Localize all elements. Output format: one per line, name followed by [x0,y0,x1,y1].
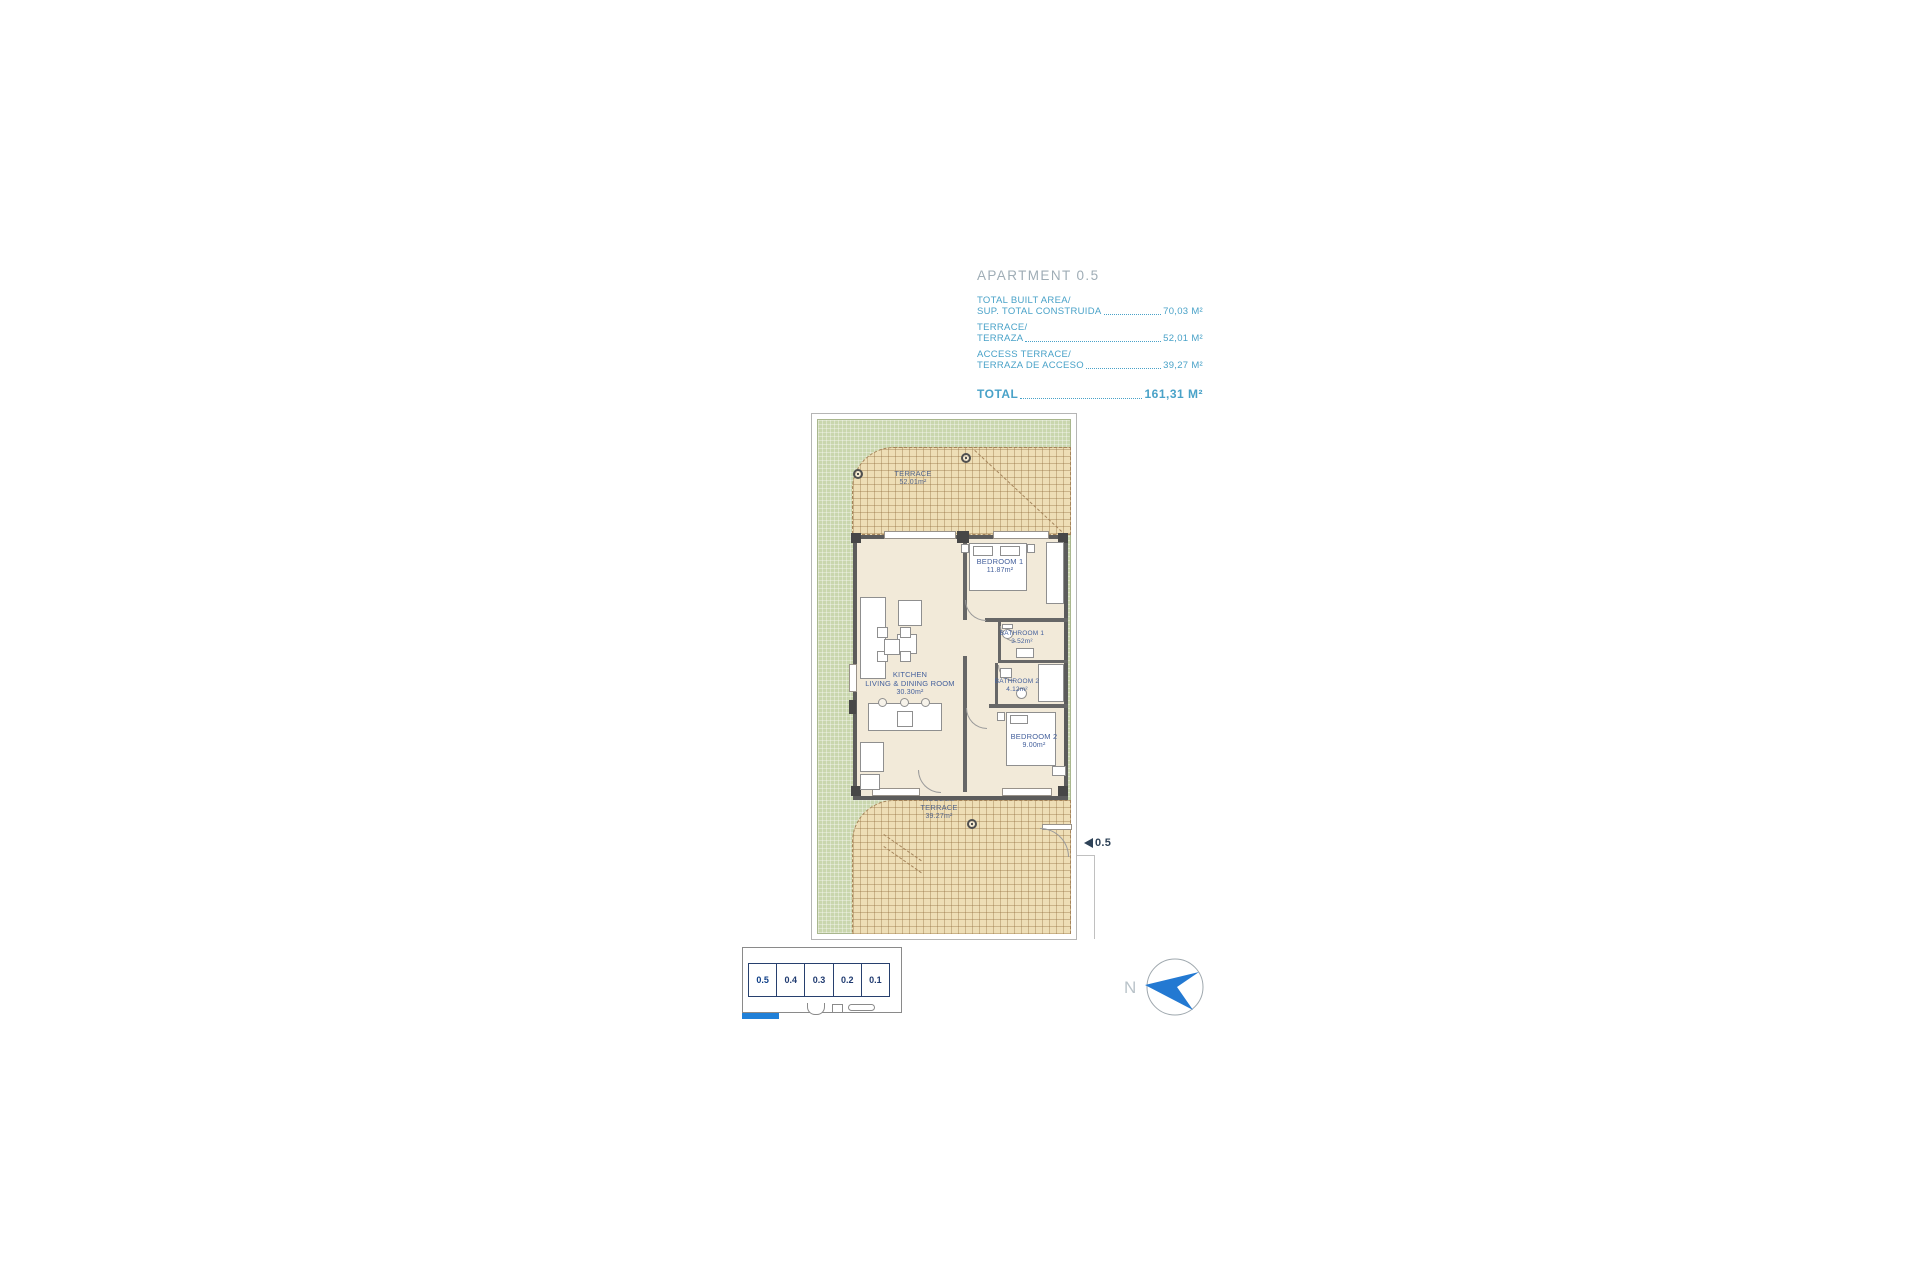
area-row-terrace: TERRACE/ TERRAZA 52,01 M² [977,322,1203,344]
dining-chair [900,651,911,662]
window [884,531,956,539]
key-plan-units: 0.5 0.4 0.3 0.2 0.1 [748,963,890,997]
dotted-leader [1104,314,1162,315]
total-value: 161,31 M² [1144,387,1203,401]
kitchen-living-label: KITCHEN LIVING & DINING ROOM 30.30m² [855,671,965,697]
drain-icon [853,469,863,479]
dining-table [884,639,900,655]
pillow [1010,715,1028,724]
window [1002,788,1052,796]
bar-stool [921,698,930,707]
wall-pier [1058,786,1068,796]
nightstand [997,712,1005,721]
key-plan-unit-01: 0.1 [862,964,889,996]
nightstand [1027,544,1035,553]
brochure-page: { "header": { "title": "APARTMENT 0.5", … [0,0,1920,1280]
page-title: APARTMENT 0.5 [977,268,1203,283]
cooktop [897,711,913,727]
wall-pier [849,700,856,714]
wall-pier [851,533,861,543]
key-plan-unit-04: 0.4 [777,964,805,996]
sink [1000,668,1012,678]
pillow [1000,546,1020,556]
north-compass: N [1120,950,1220,1025]
total-row: TOTAL 161,31 M² [977,387,1203,401]
key-plan-unit-02: 0.2 [834,964,862,996]
key-plan-notch [832,1004,843,1013]
boundary-stub [1094,855,1095,939]
window [993,531,1049,539]
dotted-leader [1086,368,1161,369]
terrace-label: TERRACE 52.01m² [883,470,943,487]
dotted-leader [1025,341,1161,342]
sink [1016,648,1034,658]
sofa [860,597,886,679]
wall-pier [957,531,969,543]
bar-stool [878,698,887,707]
area-summary: APARTMENT 0.5 TOTAL BUILT AREA/ SUP. TOT… [977,268,1203,401]
unit-marker-label: 0.5 [1095,837,1111,849]
armchair [898,600,922,626]
dotted-leader [1020,398,1142,399]
wardrobe [1046,542,1064,604]
area-row-access-terrace: ACCESS TERRACE/ TERRAZA DE ACCESO 39,27 … [977,349,1203,371]
key-plan-unit-05: 0.5 [749,964,777,996]
nightstand [961,544,969,553]
bathroom1-label: BATHROOM 1 3.52m² [990,630,1054,645]
north-letter: N [1124,978,1136,997]
kitchen-sink-unit [860,742,884,772]
dining-chair [900,627,911,638]
unit-marker: 0.5 [1084,837,1111,849]
interior-wall [989,704,1068,708]
bedroom1-label: BEDROOM 1 11.87m² [960,558,1040,575]
dining-chair [877,627,888,638]
drain-icon [961,453,971,463]
key-plan-unit-03: 0.3 [805,964,833,996]
oven [860,774,880,790]
key-plan-stair-notch [807,1003,825,1015]
closet [1052,766,1066,776]
pillow [973,546,993,556]
key-plan: 0.5 0.4 0.3 0.2 0.1 [740,945,910,1025]
total-label: TOTAL [977,387,1018,401]
bedroom2-label: BEDROOM 2 9.00m² [994,733,1074,750]
bathroom2-label: BATHROOM 2 4.12m² [985,678,1049,693]
area-row-built: TOTAL BUILT AREA/ SUP. TOTAL CONSTRUIDA … [977,295,1203,317]
interior-wall [998,660,1068,663]
boundary-stub [1077,855,1095,856]
left-triangle-icon [1084,838,1093,848]
key-plan-notch [848,1004,875,1011]
bar-stool [900,698,909,707]
